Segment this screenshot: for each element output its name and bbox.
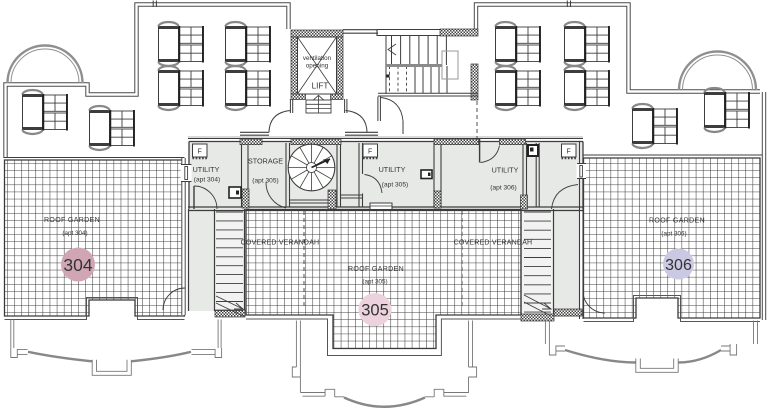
svg-text:F: F	[368, 149, 372, 156]
svg-text:UTILITY: UTILITY	[379, 165, 406, 174]
svg-text:(apt 304): (apt 304)	[194, 177, 220, 184]
svg-text:COVERED VERANDAH: COVERED VERANDAH	[454, 240, 533, 247]
svg-text:(apt 306): (apt 306)	[490, 185, 516, 192]
svg-text:LIFT: LIFT	[312, 82, 329, 91]
svg-text:F: F	[198, 149, 202, 156]
svg-text:(apt 305): (apt 305)	[252, 178, 278, 185]
svg-text:305: 305	[361, 302, 389, 320]
svg-text:ventilation: ventilation	[303, 55, 332, 62]
svg-text:(apt 306): (apt 306)	[661, 231, 686, 238]
svg-text:UTILITY: UTILITY	[492, 166, 519, 175]
svg-text:(apt 304): (apt 304)	[62, 230, 87, 237]
svg-text:F: F	[567, 149, 571, 156]
svg-text:ROOF GARDEN: ROOF GARDEN	[649, 218, 705, 225]
svg-text:UTILITY: UTILITY	[193, 165, 220, 174]
svg-text:ROOF GARDEN: ROOF GARDEN	[348, 266, 404, 273]
svg-text:306: 306	[665, 257, 692, 274]
svg-text:opening: opening	[306, 63, 329, 70]
svg-text:304: 304	[63, 255, 92, 275]
svg-text:(apt 305): (apt 305)	[382, 182, 408, 189]
svg-text:ROOF GARDEN: ROOF GARDEN	[44, 217, 100, 224]
svg-text:COVERED VERANDAH: COVERED VERANDAH	[241, 240, 320, 247]
svg-text:(apt 305): (apt 305)	[362, 279, 387, 286]
svg-text:STORAGE: STORAGE	[248, 157, 283, 166]
